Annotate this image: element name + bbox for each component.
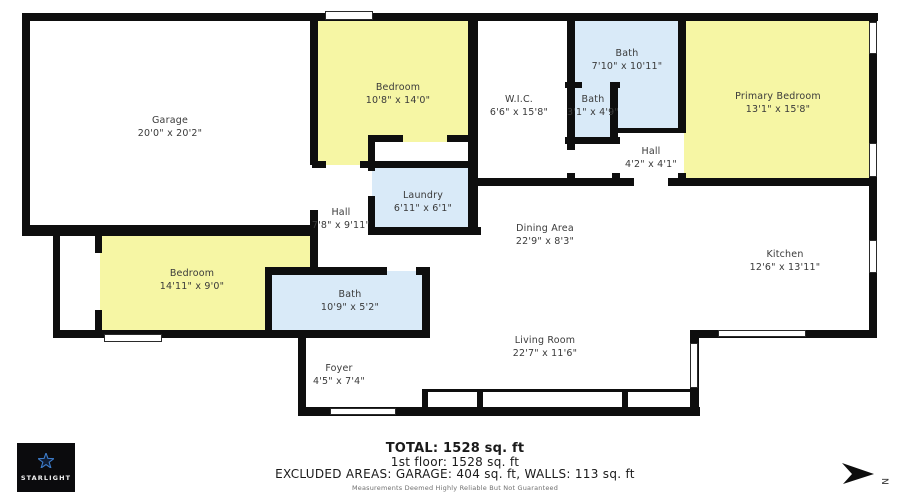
room-dims: 22'7" x 11'6" — [513, 348, 578, 361]
wall — [310, 13, 318, 165]
total-area-text: TOTAL: 1528 sq. ft — [115, 442, 795, 456]
room-label-bedroom-top: Bedroom 10'8" x 14'0" — [366, 82, 431, 107]
porch-stub — [622, 389, 628, 407]
room-label-dining-area: Dining Area 22'9" x 8'3" — [516, 223, 574, 248]
wall — [468, 178, 634, 186]
room-dims: 6'11" x 6'1" — [394, 203, 452, 216]
room-name: Laundry — [394, 190, 452, 203]
brand-logo: STARLIGHT — [17, 443, 75, 492]
room-label-living-room: Living Room 22'7" x 11'6" — [513, 335, 578, 360]
room-dims: 12'6" x 13'11" — [750, 262, 821, 275]
room-name: Foyer — [313, 363, 365, 376]
wall — [567, 13, 575, 150]
wall — [668, 178, 877, 186]
room-label-garage: Garage 20'0" x 20'2" — [138, 115, 203, 140]
wall — [298, 338, 306, 416]
room-name: Bath — [592, 48, 663, 61]
wall — [265, 267, 272, 338]
room-dims: 10'9" x 5'2" — [321, 302, 379, 315]
wall — [422, 267, 430, 338]
room-dims: 22'9" x 8'3" — [516, 236, 574, 249]
room-name: W.I.C. — [490, 94, 548, 107]
room-dims: 20'0" x 20'2" — [138, 128, 203, 141]
wall — [95, 310, 102, 330]
room-name: Kitchen — [750, 249, 821, 262]
room-name: Bath — [321, 289, 379, 302]
window-marker — [325, 11, 373, 20]
room-name: Bedroom — [160, 268, 225, 281]
window-marker — [869, 22, 877, 54]
wall — [612, 173, 620, 186]
room-dims: 14'11" x 9'0" — [160, 281, 225, 294]
wall — [265, 267, 387, 275]
front-door-marker — [330, 408, 396, 415]
wall — [22, 13, 878, 21]
room-label-bath-small: Bath 3'1" x 4'9" — [567, 94, 619, 119]
room-label-wic: W.I.C. 6'6" x 15'8" — [490, 94, 548, 119]
wall — [612, 128, 686, 133]
room-label-bedroom-left: Bedroom 14'11" x 9'0" — [160, 268, 225, 293]
window-wall-line — [628, 389, 690, 392]
room-label-hall: Hall 7'8" x 9'11" — [312, 207, 370, 232]
room-name: Hall — [312, 207, 370, 220]
wall — [468, 13, 478, 235]
wall — [22, 13, 30, 236]
window-marker — [718, 330, 806, 337]
room-dims: 6'6" x 15'8" — [490, 107, 548, 120]
wall — [22, 225, 318, 236]
area-summary: TOTAL: 1528 sq. ft 1st floor: 1528 sq. f… — [115, 442, 795, 492]
window-marker — [104, 334, 162, 342]
room-name: Garage — [138, 115, 203, 128]
room-label-primary-bedroom: Primary Bedroom 13'1" x 15'8" — [735, 91, 821, 116]
room-name: Living Room — [513, 335, 578, 348]
wall — [368, 135, 375, 171]
room-name: Primary Bedroom — [735, 91, 821, 104]
wall — [368, 227, 481, 235]
window-marker — [690, 343, 698, 388]
room-label-bath-mid: Bath 10'9" x 5'2" — [321, 289, 379, 314]
room-dims: 10'8" x 14'0" — [366, 95, 431, 108]
wall — [678, 13, 686, 132]
room-dims: 7'8" x 9'11" — [312, 220, 370, 233]
wall — [678, 173, 686, 183]
window-wall-line — [428, 389, 477, 392]
north-label: N — [879, 478, 889, 485]
star-icon — [38, 453, 54, 472]
room-name: Hall — [625, 146, 677, 159]
wall — [95, 233, 102, 253]
porch-stub — [477, 389, 483, 407]
room-dims: 13'1" x 15'8" — [735, 104, 821, 117]
room-dims: 7'10" x 10'11" — [592, 61, 663, 74]
room-name: Bath — [567, 94, 619, 107]
floorplan-canvas: Garage 20'0" x 20'2" Bedroom 10'8" x 14'… — [0, 0, 900, 500]
room-label-hall-small: Hall 4'2" x 4'1" — [625, 146, 677, 171]
brand-name: STARLIGHT — [21, 474, 71, 482]
room-dims: 3'1" x 4'9" — [567, 107, 619, 120]
wall — [567, 173, 575, 186]
room-label-kitchen: Kitchen 12'6" x 13'11" — [750, 249, 821, 274]
room-name: Dining Area — [516, 223, 574, 236]
room-label-laundry: Laundry 6'11" x 6'1" — [394, 190, 452, 215]
compass: N — [838, 458, 896, 494]
window-marker — [869, 240, 877, 273]
north-arrow-icon — [842, 463, 874, 484]
wall — [360, 161, 478, 168]
room-label-foyer: Foyer 4'5" x 7'4" — [313, 363, 365, 388]
room-name: Bedroom — [366, 82, 431, 95]
window-marker — [869, 143, 877, 177]
disclaimer-text: Measurements Deemed Highly Reliable But … — [115, 484, 795, 492]
excluded-areas-text: EXCLUDED AREAS: GARAGE: 404 sq. ft, WALL… — [115, 468, 795, 480]
window-wall-line — [483, 389, 622, 392]
room-dims: 4'2" x 4'1" — [625, 159, 677, 172]
porch-stub — [422, 389, 428, 407]
room-dims: 4'5" x 7'4" — [313, 376, 365, 389]
room-label-bath-top: Bath 7'10" x 10'11" — [592, 48, 663, 73]
wall — [53, 225, 60, 338]
